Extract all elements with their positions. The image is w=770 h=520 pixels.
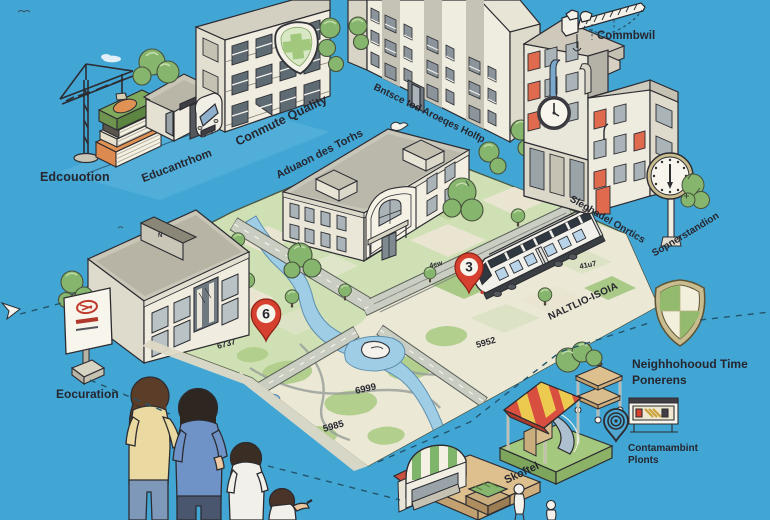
- svg-text:Eocuration: Eocuration: [56, 387, 119, 401]
- svg-text:Edcouotion: Edcouotion: [40, 170, 110, 184]
- svg-text:N: N: [158, 233, 162, 239]
- svg-text:Ponerens: Ponerens: [632, 373, 687, 387]
- svg-text:3: 3: [465, 260, 473, 275]
- svg-text:6: 6: [262, 306, 270, 322]
- svg-text:Neighhohooud Time: Neighhohooud Time: [632, 357, 748, 371]
- svg-text:Contamambint: Contamambint: [628, 443, 699, 454]
- svg-text:Plonts: Plonts: [628, 455, 659, 466]
- svg-text:Commbwil: Commbwil: [597, 30, 655, 42]
